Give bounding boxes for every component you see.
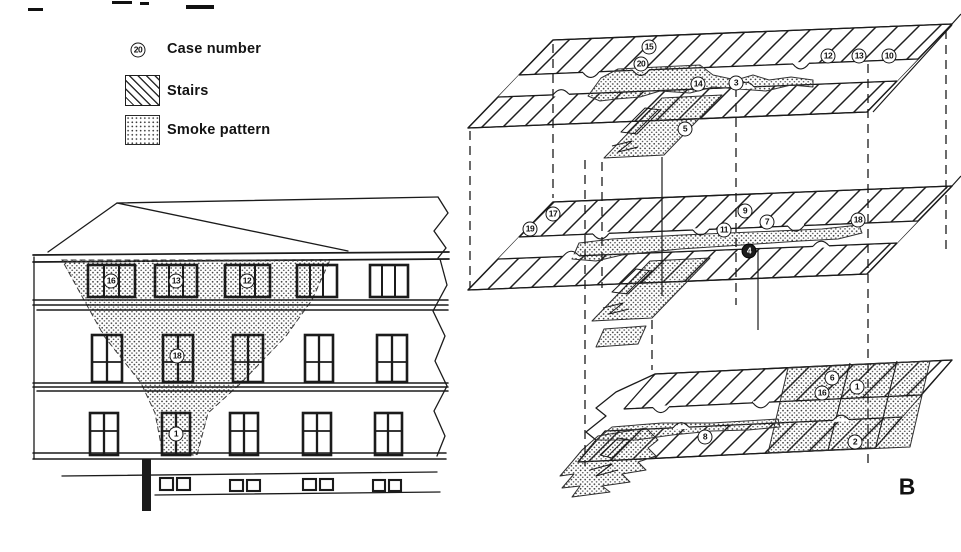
case-badge: 11: [717, 223, 732, 238]
basement-windows: [160, 478, 401, 491]
case-badge: 8: [698, 430, 713, 445]
figure-label-b: B: [899, 474, 916, 501]
case-badge: 1: [169, 427, 184, 442]
ground-floor-windows: [90, 413, 402, 455]
legend-smoke-label: Smoke pattern: [167, 122, 270, 138]
scanned-figure: 20 Case number Stairs Smoke pattern 16 1…: [0, 0, 961, 552]
case-badge: 13: [852, 49, 867, 64]
case-badge: 16: [815, 386, 830, 401]
case-badge: 18: [170, 349, 185, 364]
iso-floor-bottom: [560, 360, 952, 497]
case-badge: 20: [634, 57, 649, 72]
case-badge: 2: [848, 435, 863, 450]
iso-floor-top: [468, 14, 961, 158]
isometric-floors: [468, 14, 961, 497]
legend-stairs-label: Stairs: [167, 83, 209, 99]
case-badge: 15: [642, 40, 657, 55]
building-elevation: [33, 197, 449, 511]
scan-artifacts: [28, 1, 214, 11]
case-badge: 18: [851, 213, 866, 228]
legend-case-badge: 20: [131, 43, 146, 58]
case-badge: 12: [240, 274, 255, 289]
smoke-pattern-swatch: [125, 115, 160, 145]
case-badge: 3: [729, 76, 744, 91]
case-badge: 7: [760, 215, 775, 230]
downpipe: [142, 459, 151, 511]
stair-room-smoke: [560, 428, 658, 497]
roof: [48, 197, 448, 258]
case-badge: 1: [850, 380, 865, 395]
case-badge: 14: [691, 77, 706, 92]
case-badge: 17: [546, 207, 561, 222]
case-badge: 13: [169, 274, 184, 289]
smoke-blob: [596, 326, 646, 347]
iso-floor-middle: [468, 176, 961, 347]
case-badge: 12: [821, 49, 836, 64]
facade-torn-right-edge: [433, 259, 447, 456]
case-badge: 4: [742, 244, 757, 259]
case-badge: 6: [825, 371, 840, 386]
case-badge: 5: [678, 122, 693, 137]
plinth: [62, 459, 440, 511]
case-badge: 16: [104, 274, 119, 289]
stairs-swatch: [125, 75, 160, 106]
case-badge: 19: [523, 222, 538, 237]
case-badge: 9: [738, 204, 753, 219]
case-badge: 10: [882, 49, 897, 64]
legend-case-number-label: Case number: [167, 41, 261, 57]
